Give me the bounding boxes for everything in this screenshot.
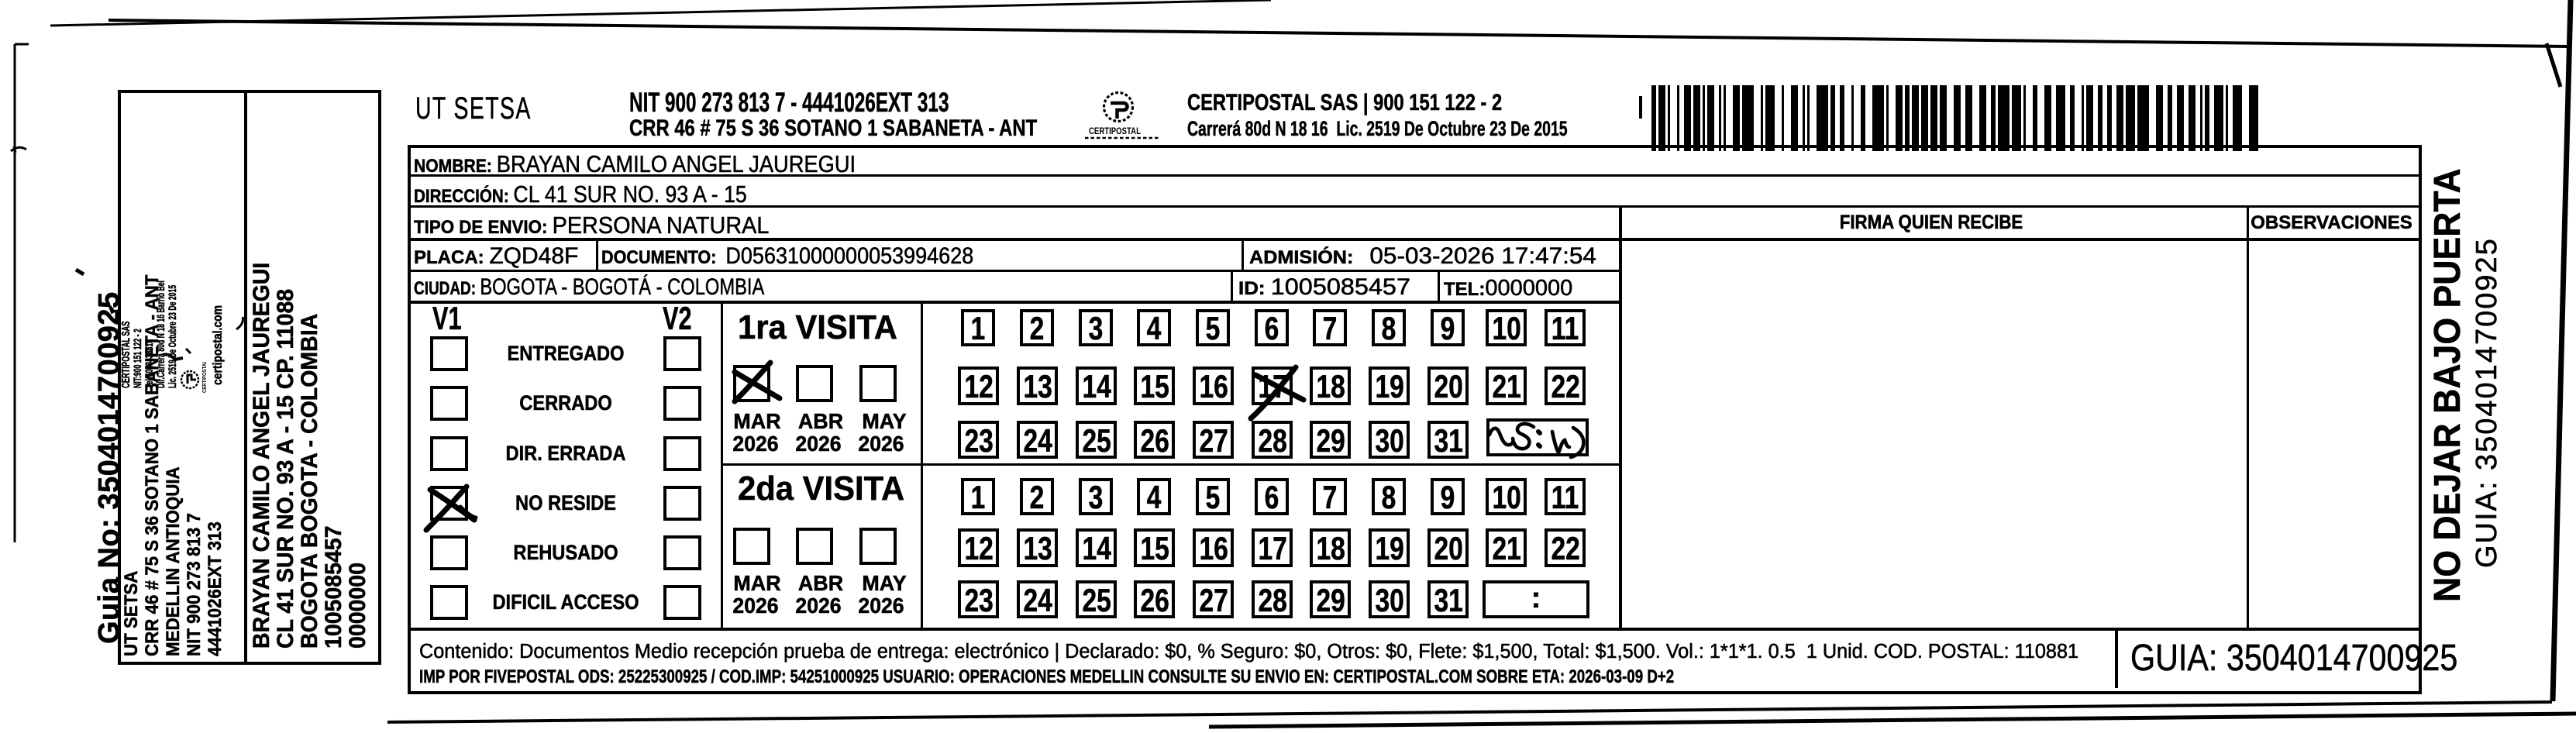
- svg-text:CERTIPOSTAL: CERTIPOSTAL: [1089, 126, 1141, 136]
